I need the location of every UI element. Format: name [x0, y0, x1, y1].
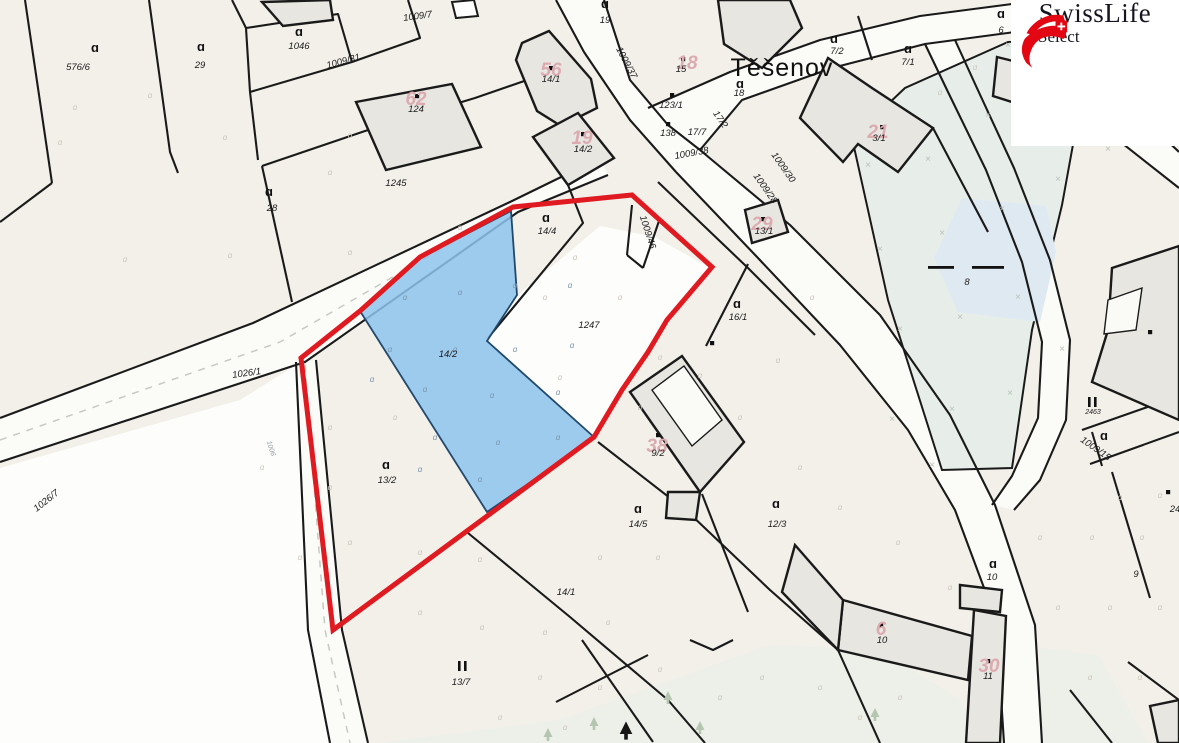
- parcel-label: 18: [734, 88, 745, 99]
- parcel-label: 138: [660, 128, 677, 139]
- meadow-bars-symbol-icon: [1094, 397, 1097, 407]
- meadow-x-symbol-icon: ×: [889, 414, 895, 425]
- parcel-label: 3/1: [872, 133, 885, 144]
- building: [960, 585, 1002, 612]
- meadow-x-symbol-icon: ×: [1015, 292, 1021, 303]
- parcel-label: 13/1: [755, 226, 774, 237]
- landuse-symbol-faint-icon: ɑ: [393, 413, 398, 422]
- meadow-x-symbol-icon: ×: [985, 110, 991, 121]
- landuse-symbol-faint-icon: ɑ: [658, 353, 663, 362]
- grassland-symbol-icon: ɑ: [989, 556, 997, 571]
- grassland-symbol-icon: ɑ: [772, 496, 780, 511]
- landuse-symbol-faint-icon: ɑ: [538, 673, 543, 682]
- landuse-symbol-faint-icon: ɑ: [1138, 673, 1143, 682]
- landuse-symbol-blue-icon: ɑ: [496, 438, 501, 447]
- landuse-symbol-faint-icon: ɑ: [498, 713, 503, 722]
- parcel-label: 10: [987, 572, 998, 583]
- meadow-bars-symbol-icon: [458, 661, 461, 671]
- landuse-symbol-faint-icon: ɑ: [228, 251, 233, 260]
- landuse-symbol-faint-icon: ɑ: [760, 673, 765, 682]
- grassland-symbol-icon: ɑ: [295, 24, 303, 39]
- parcel-label: 12/3: [768, 519, 787, 530]
- grassland-symbol-icon: ɑ: [830, 31, 838, 46]
- landuse-symbol-blue-icon: ɑ: [458, 288, 463, 297]
- grassland-symbol-icon: ɑ: [91, 40, 99, 55]
- landuse-symbol-faint-icon: ɑ: [348, 538, 353, 547]
- landuse-symbol-faint-icon: ɑ: [328, 168, 333, 177]
- landuse-symbol-faint-icon: ɑ: [656, 553, 661, 562]
- landuse-symbol-faint-icon: ɑ: [478, 555, 483, 564]
- parcel-label: 19: [600, 15, 611, 26]
- building-point-icon: [670, 93, 674, 97]
- landuse-symbol-blue-icon: ɑ: [570, 341, 575, 350]
- meadow-bars-symbol-icon: [464, 661, 467, 671]
- meadow-x-symbol-icon: ×: [949, 404, 955, 415]
- grassland-symbol-icon: ɑ: [904, 41, 912, 56]
- landuse-symbol-blue-icon: ɑ: [370, 375, 375, 384]
- meadow-x-symbol-icon: ×: [925, 154, 931, 165]
- grassland-symbol-icon: ɑ: [997, 6, 1005, 21]
- parcel-label: 15: [676, 64, 687, 75]
- landuse-symbol-faint-icon: ɑ: [543, 293, 548, 302]
- landuse-symbol-blue-icon: ɑ: [556, 388, 561, 397]
- landuse-symbol-faint-icon: ɑ: [1140, 533, 1145, 542]
- meadow-x-symbol-icon: ×: [1007, 388, 1013, 399]
- landuse-symbol-faint-icon: ɑ: [618, 293, 623, 302]
- meadow-x-symbol-icon: ×: [929, 460, 935, 471]
- grassland-symbol-icon: ɑ: [197, 39, 205, 54]
- landuse-symbol-faint-icon: ɑ: [328, 423, 333, 432]
- parcel-label: 9/2: [651, 448, 665, 459]
- landuse-symbol-faint-icon: ɑ: [776, 356, 781, 365]
- landuse-symbol-faint-icon: ɑ: [973, 63, 978, 72]
- landuse-symbol-faint-icon: ɑ: [348, 248, 353, 257]
- landuse-symbol-faint-icon: ɑ: [606, 618, 611, 627]
- parcel-label: 11: [983, 671, 993, 682]
- parcel-label: 28: [266, 203, 278, 214]
- landuse-symbol-blue-icon: ɑ: [388, 345, 393, 354]
- parcel-label: 13/2: [378, 475, 397, 486]
- parcel-label: 8: [964, 277, 970, 288]
- parcel-label: 14/1: [542, 74, 561, 85]
- building-point-icon: [666, 122, 670, 126]
- swisslife-logo: SwissLife Select: [1011, 0, 1179, 146]
- parcel-label: 6: [998, 25, 1004, 36]
- landuse-symbol-blue-icon: ɑ: [568, 281, 573, 290]
- parcel-label: 576/6: [66, 62, 90, 73]
- meadow-x-symbol-icon: ×: [939, 228, 945, 239]
- meadow-x-symbol-icon: ×: [865, 160, 871, 171]
- parcel-label: 9: [1133, 569, 1139, 580]
- landuse-symbol-faint-icon: ɑ: [948, 583, 953, 592]
- grassland-symbol-icon: ɑ: [601, 0, 609, 11]
- landuse-symbol-faint-icon: ɑ: [1108, 603, 1113, 612]
- meadow-x-symbol-icon: ×: [897, 324, 903, 335]
- landuse-symbol-faint-icon: ɑ: [1158, 491, 1163, 500]
- water-symbol-icon: [972, 266, 1004, 269]
- landuse-symbol-blue-icon: ɑ: [403, 293, 408, 302]
- landuse-symbol-faint-icon: ɑ: [598, 553, 603, 562]
- landuse-symbol-faint-icon: ɑ: [558, 373, 563, 382]
- landuse-symbol-faint-icon: ɑ: [898, 693, 903, 702]
- landuse-symbol-faint-icon: ɑ: [123, 255, 128, 264]
- landuse-symbol-faint-icon: ɑ: [698, 371, 703, 380]
- landuse-symbol-faint-icon: ɑ: [148, 91, 153, 100]
- landuse-symbol-blue-icon: ɑ: [513, 281, 518, 290]
- grassland-symbol-icon: ɑ: [382, 457, 390, 472]
- landuse-symbol-faint-icon: ɑ: [1056, 603, 1061, 612]
- landuse-symbol-faint-icon: ɑ: [818, 683, 823, 692]
- parcel-label: 1247: [578, 320, 600, 331]
- parcel-label: 14/4: [538, 226, 557, 237]
- parcel-label: 2463: [1084, 409, 1101, 416]
- building: [452, 0, 478, 18]
- parcel-label: 14/2: [574, 144, 593, 155]
- landuse-symbol-faint-icon: ɑ: [328, 483, 333, 492]
- parcel-label: 1245: [385, 178, 407, 189]
- landuse-symbol-faint-icon: ɑ: [1088, 673, 1093, 682]
- parcel-label: 124: [408, 104, 424, 115]
- landuse-symbol-faint-icon: ɑ: [458, 223, 463, 232]
- parcel-label: 123/1: [659, 100, 683, 111]
- landuse-symbol-faint-icon: ɑ: [58, 138, 63, 147]
- grassland-symbol-icon: ɑ: [1100, 428, 1108, 443]
- landuse-symbol-blue-icon: ɑ: [478, 475, 483, 484]
- meadow-x-symbol-icon: ×: [1059, 344, 1065, 355]
- landuse-symbol-faint-icon: ɑ: [298, 553, 303, 562]
- building-point-icon: [710, 341, 714, 345]
- landuse-symbol-faint-icon: ɑ: [798, 463, 803, 472]
- water-symbol-icon: [928, 266, 954, 269]
- landuse-symbol-faint-icon: ɑ: [810, 293, 815, 302]
- meadow-x-symbol-icon: ×: [877, 244, 883, 255]
- grassland-symbol-icon: ɑ: [265, 184, 273, 199]
- parcel-label: 13/7: [452, 677, 471, 688]
- landuse-symbol-blue-icon: ɑ: [490, 391, 495, 400]
- landuse-symbol-faint-icon: ɑ: [418, 548, 423, 557]
- cadastral-map-canvas: ɑɑɑɑɑɑɑɑɑɑɑɑɑɑɑɑɑɑɑɑɑɑɑɑɑɑɑɑɑɑɑɑɑɑɑɑɑɑɑɑ…: [0, 0, 1179, 743]
- grassland-symbol-icon: ɑ: [634, 501, 642, 516]
- landuse-symbol-faint-icon: ɑ: [260, 463, 265, 472]
- landuse-symbol-blue-icon: ɑ: [556, 433, 561, 442]
- parcel-label: 10: [877, 635, 888, 646]
- landuse-symbol-faint-icon: ɑ: [563, 723, 568, 732]
- landuse-symbol-faint-icon: ɑ: [73, 103, 78, 112]
- building: [666, 492, 700, 520]
- swisslife-flag-icon: [1011, 10, 1073, 68]
- parcel-label: 24: [1169, 504, 1179, 515]
- parcel-label: 14/2: [439, 349, 458, 360]
- landuse-symbol-faint-icon: ɑ: [598, 683, 603, 692]
- landuse-symbol-faint-icon: ɑ: [1158, 603, 1163, 612]
- building-point-icon: [1166, 490, 1170, 494]
- meadow-x-symbol-icon: ×: [957, 312, 963, 323]
- landuse-symbol-faint-icon: ɑ: [543, 628, 548, 637]
- landuse-symbol-faint-icon: ɑ: [348, 131, 353, 140]
- landuse-symbol-faint-icon: ɑ: [1118, 493, 1123, 502]
- cadastral-map: ɑɑɑɑɑɑɑɑɑɑɑɑɑɑɑɑɑɑɑɑɑɑɑɑɑɑɑɑɑɑɑɑɑɑɑɑɑɑɑɑ…: [0, 0, 1179, 743]
- meadow-x-symbol-icon: ×: [999, 204, 1005, 215]
- parcel-label: 14/5: [629, 519, 648, 530]
- parcel-label: 16/1: [729, 312, 748, 323]
- parcel-label: 14/1: [557, 587, 576, 598]
- landuse-symbol-faint-icon: ɑ: [1038, 533, 1043, 542]
- landuse-symbol-blue-icon: ɑ: [418, 465, 423, 474]
- landuse-symbol-faint-icon: ɑ: [573, 253, 578, 262]
- building-point-icon: [1148, 330, 1152, 334]
- landuse-symbol-faint-icon: ɑ: [718, 693, 723, 702]
- meadow-x-symbol-icon: ×: [1055, 174, 1061, 185]
- landuse-symbol-faint-icon: ɑ: [858, 713, 863, 722]
- parcel-label: 7/1: [901, 57, 914, 68]
- landuse-symbol-faint-icon: ɑ: [418, 608, 423, 617]
- landuse-symbol-faint-icon: ɑ: [896, 538, 901, 547]
- landuse-symbol-blue-icon: ɑ: [433, 433, 438, 442]
- landuse-symbol-faint-icon: ɑ: [938, 88, 943, 97]
- landuse-symbol-blue-icon: ɑ: [423, 385, 428, 394]
- parcel-label: 1046: [288, 41, 310, 52]
- landuse-symbol-faint-icon: ɑ: [738, 413, 743, 422]
- parcel-label: 17/7: [688, 127, 707, 138]
- grassland-symbol-icon: ɑ: [733, 296, 741, 311]
- town-label: Těšenov: [731, 54, 834, 82]
- meadow-bars-symbol-icon: [1088, 397, 1091, 407]
- landuse-symbol-faint-icon: ɑ: [480, 623, 485, 632]
- landuse-symbol-faint-icon: ɑ: [838, 503, 843, 512]
- landuse-symbol-blue-icon: ɑ: [513, 345, 518, 354]
- landuse-symbol-faint-icon: ɑ: [658, 665, 663, 674]
- parcel-label: 29: [194, 60, 206, 71]
- grassland-symbol-icon: ɑ: [542, 210, 550, 225]
- landuse-symbol-faint-icon: ɑ: [1090, 533, 1095, 542]
- landuse-symbol-faint-icon: ɑ: [638, 403, 643, 412]
- landuse-symbol-faint-icon: ɑ: [223, 133, 228, 142]
